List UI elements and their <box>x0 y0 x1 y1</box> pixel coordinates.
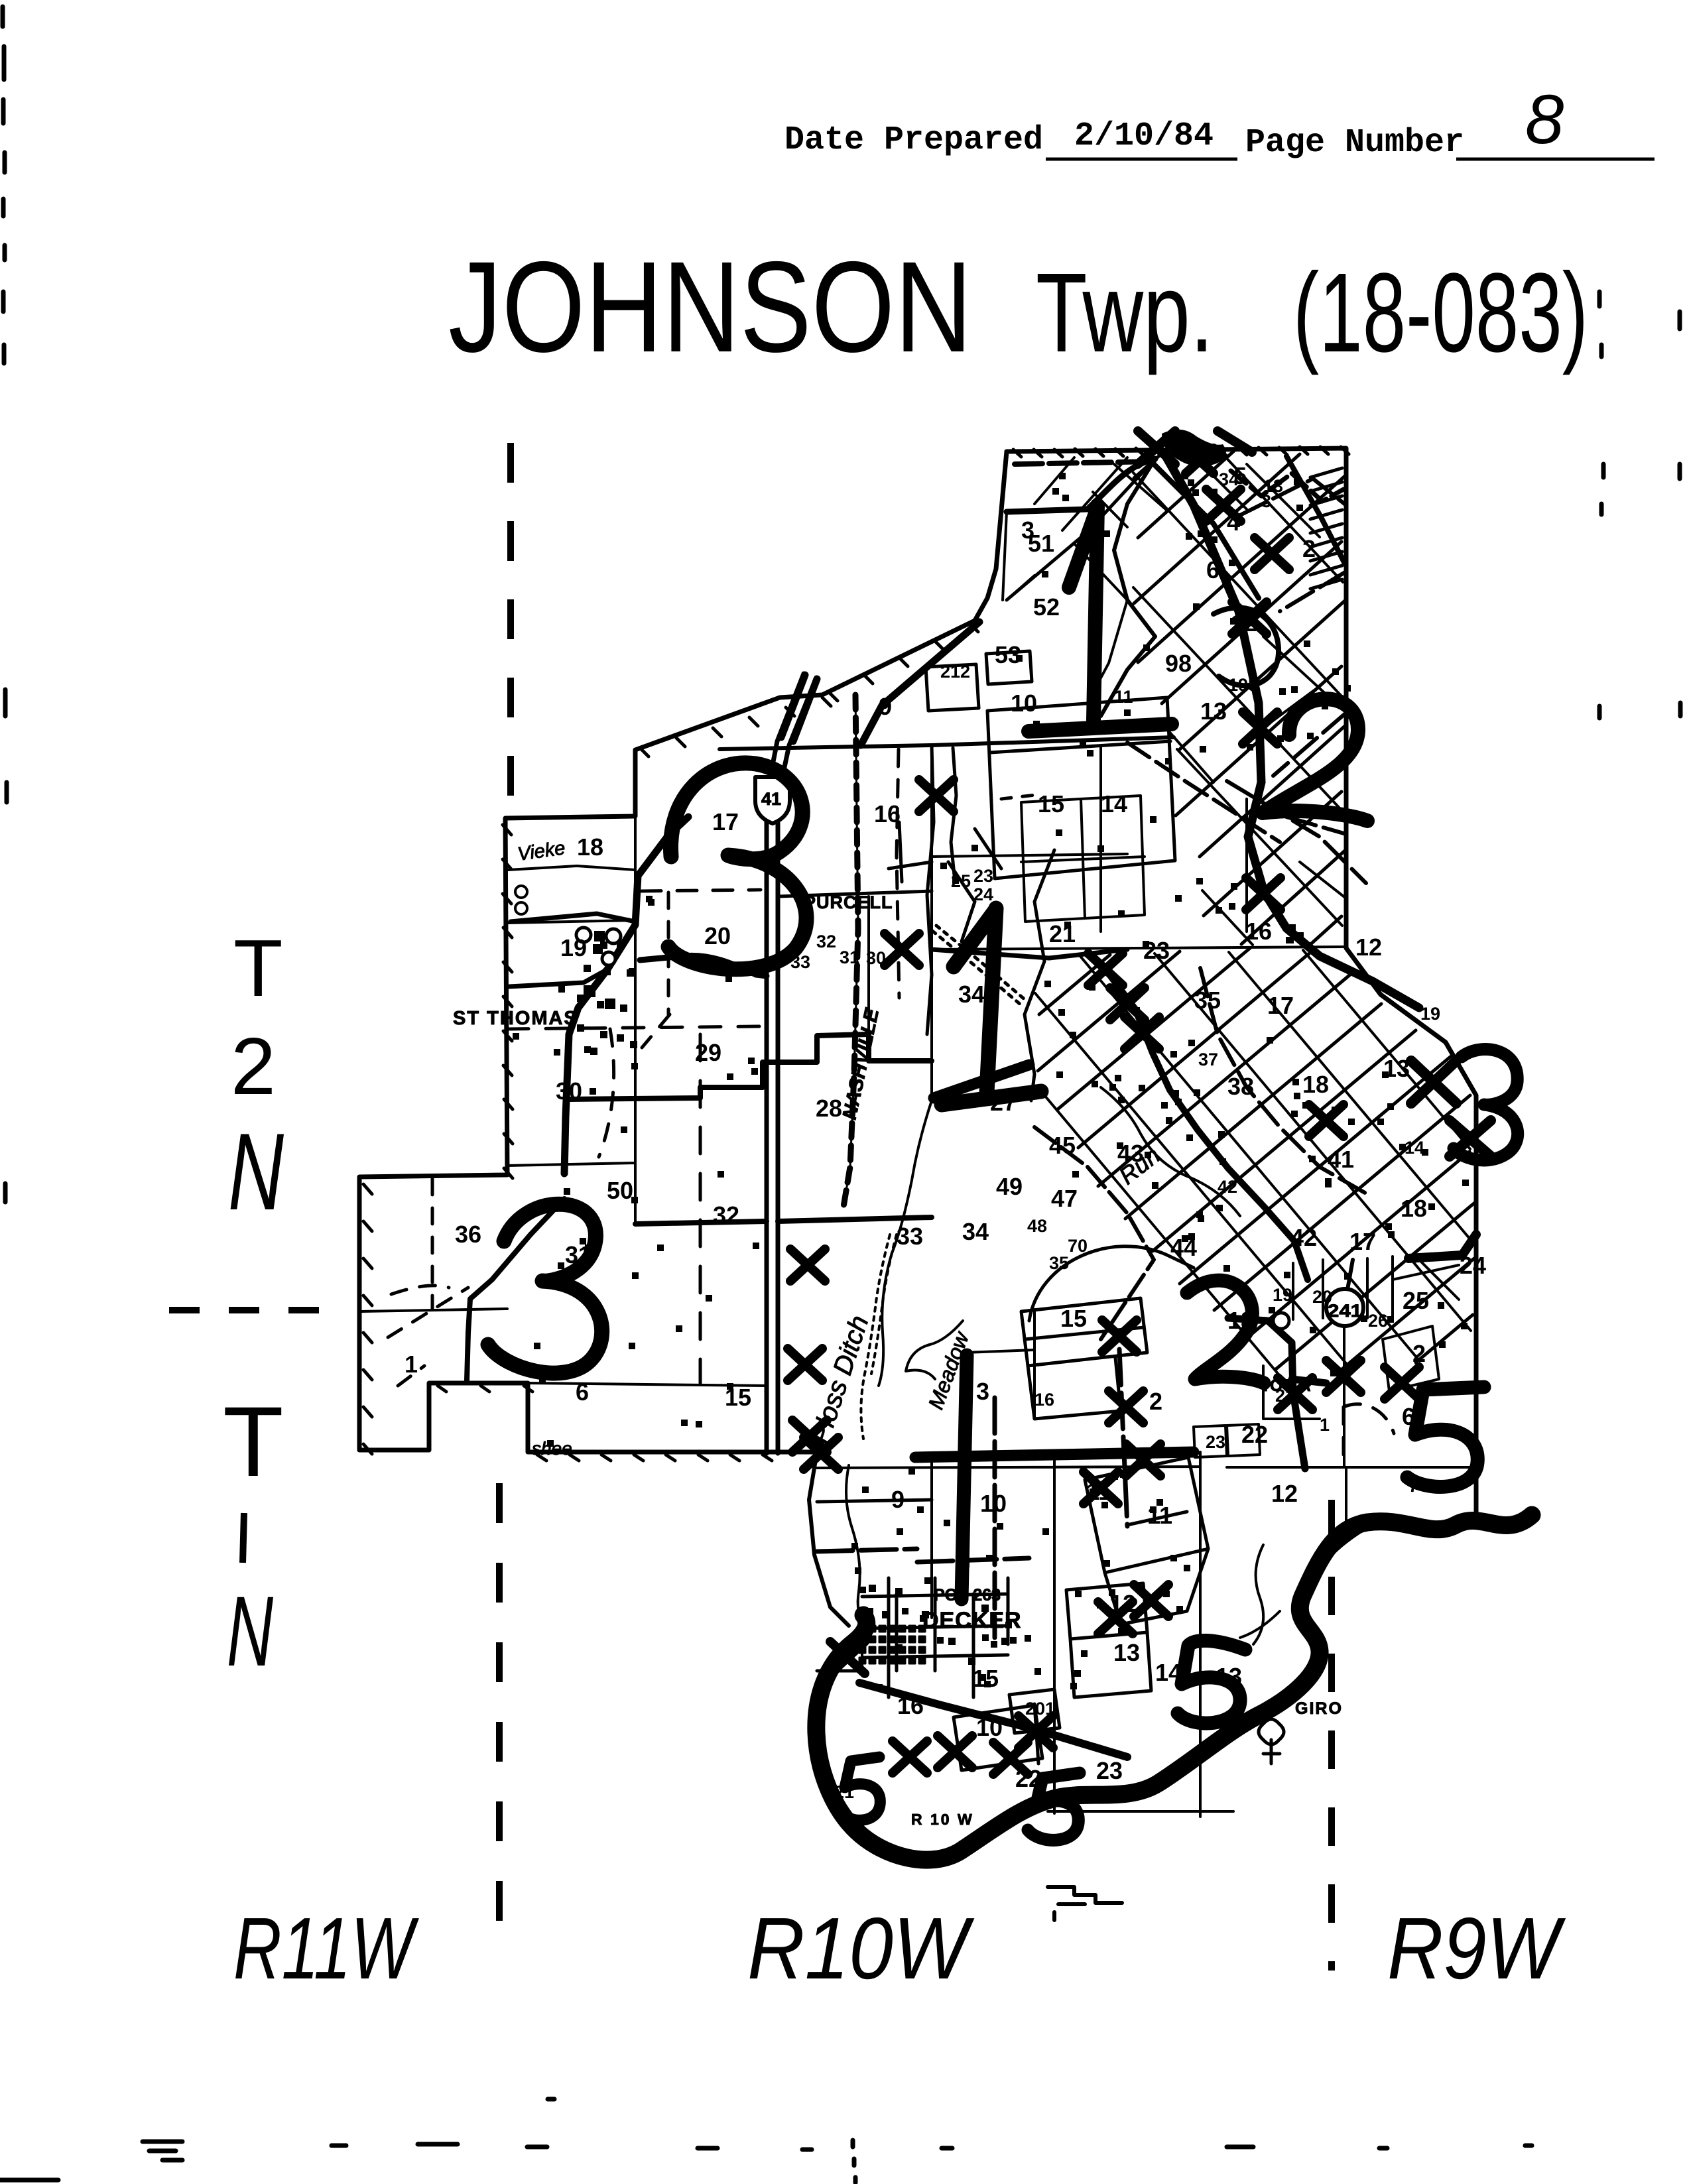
svg-text:26: 26 <box>1368 1311 1388 1331</box>
svg-text:19: 19 <box>1420 1004 1440 1024</box>
svg-text:13: 13 <box>1200 698 1227 725</box>
svg-text:7: 7 <box>1408 1476 1418 1496</box>
svg-text:1: 1 <box>405 1351 418 1378</box>
svg-text:Page Number: Page Number <box>1245 124 1464 162</box>
svg-text:241: 241 <box>1328 1301 1362 1321</box>
svg-text:22: 22 <box>1241 1421 1268 1448</box>
svg-text:R9W: R9W <box>1387 1900 1566 1997</box>
svg-text:R10W: R10W <box>747 1900 974 1997</box>
svg-text:2: 2 <box>1412 1340 1426 1367</box>
svg-text:33: 33 <box>790 952 810 972</box>
svg-text:51: 51 <box>1028 530 1054 557</box>
svg-text:10: 10 <box>1011 690 1037 717</box>
svg-text:T: T <box>223 1386 284 1497</box>
svg-text:24: 24 <box>973 884 993 904</box>
svg-text:GIRO: GIRO <box>1295 1699 1343 1718</box>
svg-text:70: 70 <box>1068 1236 1088 1256</box>
svg-text:Twp.: Twp. <box>1036 250 1214 376</box>
svg-text:16: 16 <box>1245 918 1272 945</box>
svg-text:12: 12 <box>1355 934 1382 961</box>
svg-text:9: 9 <box>891 1486 905 1513</box>
svg-text:24: 24 <box>1460 1252 1486 1279</box>
svg-text:JOHNSON: JOHNSON <box>448 235 972 379</box>
svg-text:38: 38 <box>1227 1073 1254 1100</box>
svg-text:52: 52 <box>1033 593 1060 621</box>
svg-text:35: 35 <box>1049 1253 1069 1273</box>
svg-text:35: 35 <box>1194 987 1221 1014</box>
svg-text:16: 16 <box>897 1692 924 1719</box>
svg-text:32: 32 <box>713 1201 739 1229</box>
svg-text:6: 6 <box>1206 556 1219 583</box>
svg-text:17: 17 <box>1267 992 1294 1019</box>
svg-text:13: 13 <box>1263 476 1283 496</box>
svg-text:47: 47 <box>1051 1185 1078 1212</box>
svg-text:30: 30 <box>556 1077 582 1105</box>
svg-text:27: 27 <box>990 1089 1017 1116</box>
svg-text:5: 5 <box>1233 462 1247 489</box>
svg-text:21: 21 <box>1275 1386 1295 1406</box>
svg-text:POP 263: POP 263 <box>934 1586 1001 1605</box>
svg-text:34: 34 <box>958 981 985 1008</box>
svg-text:17: 17 <box>712 808 739 835</box>
svg-text:13: 13 <box>1216 1663 1242 1690</box>
svg-text:49: 49 <box>996 1173 1023 1200</box>
svg-text:ST THOMAS: ST THOMAS <box>453 1008 578 1029</box>
svg-text:18: 18 <box>1227 1307 1254 1334</box>
svg-text:42: 42 <box>1218 1177 1237 1197</box>
svg-text:22: 22 <box>1015 1765 1042 1792</box>
svg-text:212: 212 <box>940 662 970 682</box>
svg-text:14: 14 <box>1155 1659 1182 1686</box>
svg-text:17: 17 <box>1349 1228 1376 1255</box>
svg-text:19: 19 <box>1273 1285 1292 1305</box>
svg-text:18: 18 <box>1302 1071 1329 1098</box>
svg-text:30: 30 <box>866 948 886 968</box>
svg-text:16: 16 <box>874 800 901 827</box>
svg-text:R 10 W: R 10 W <box>911 1811 974 1828</box>
svg-text:3: 3 <box>976 1378 989 1405</box>
svg-text:1: 1 <box>1320 1415 1330 1435</box>
svg-text:32: 32 <box>816 932 836 951</box>
svg-text:18: 18 <box>1401 1195 1427 1222</box>
svg-text:N: N <box>227 1575 273 1687</box>
svg-text:195: 195 <box>1228 675 1258 695</box>
svg-text:4: 4 <box>1227 509 1240 536</box>
svg-text:19: 19 <box>560 934 587 961</box>
svg-text:42: 42 <box>1290 1224 1317 1251</box>
svg-text:15: 15 <box>1038 790 1064 818</box>
svg-text:12: 12 <box>1271 1480 1298 1507</box>
svg-text:37: 37 <box>1198 1050 1218 1069</box>
svg-text:41: 41 <box>1328 1146 1354 1173</box>
svg-text:6: 6 <box>576 1378 589 1406</box>
svg-text:31: 31 <box>840 947 859 967</box>
svg-text:(18-083): (18-083) <box>1293 250 1588 376</box>
svg-text:11: 11 <box>1147 1502 1172 1529</box>
svg-text:53: 53 <box>995 641 1021 668</box>
svg-text:21: 21 <box>834 1782 854 1802</box>
svg-text:16: 16 <box>1034 1390 1054 1410</box>
svg-text:10: 10 <box>980 1490 1007 1517</box>
svg-text:33: 33 <box>897 1223 923 1250</box>
svg-text:98: 98 <box>1165 650 1192 677</box>
svg-text:T: T <box>233 923 283 1013</box>
svg-text:20: 20 <box>1312 1287 1332 1307</box>
svg-text:45: 45 <box>1049 1132 1076 1159</box>
svg-text:18: 18 <box>577 833 603 861</box>
svg-text:DECKER: DECKER <box>922 1608 1022 1633</box>
svg-text:N: N <box>228 1111 284 1233</box>
svg-text:201: 201 <box>1025 1699 1055 1719</box>
svg-text:23: 23 <box>1206 1432 1225 1452</box>
svg-text:PURCELL: PURCELL <box>804 892 893 912</box>
svg-text:29: 29 <box>695 1039 721 1066</box>
svg-text:20: 20 <box>704 922 731 949</box>
svg-text:R11W: R11W <box>233 1900 419 1997</box>
svg-text:34: 34 <box>962 1218 989 1245</box>
svg-text:9: 9 <box>879 693 892 720</box>
svg-text:21: 21 <box>1049 920 1076 947</box>
svg-text:14: 14 <box>1405 1138 1424 1158</box>
svg-text:23: 23 <box>973 866 993 886</box>
svg-text:8: 8 <box>1525 81 1564 158</box>
svg-text:23: 23 <box>1096 1757 1123 1784</box>
svg-text:14: 14 <box>1101 790 1127 818</box>
svg-text:10: 10 <box>976 1714 1003 1741</box>
svg-text:50: 50 <box>607 1177 633 1204</box>
svg-text:15: 15 <box>1060 1305 1087 1332</box>
svg-text:41: 41 <box>761 789 781 809</box>
svg-text:6: 6 <box>1402 1403 1415 1430</box>
svg-text:2: 2 <box>1149 1388 1162 1415</box>
svg-text:25: 25 <box>1403 1287 1429 1314</box>
svg-text:2: 2 <box>231 1021 276 1111</box>
svg-text:36: 36 <box>455 1221 481 1248</box>
svg-text:28: 28 <box>816 1095 842 1122</box>
svg-text:Date Prepared: Date Prepared <box>784 121 1043 159</box>
svg-text:2/10/84: 2/10/84 <box>1074 117 1214 155</box>
svg-text:2: 2 <box>1302 535 1316 562</box>
svg-text:11: 11 <box>1114 687 1133 707</box>
svg-text:48: 48 <box>1027 1216 1047 1236</box>
svg-text:13: 13 <box>1113 1639 1140 1666</box>
